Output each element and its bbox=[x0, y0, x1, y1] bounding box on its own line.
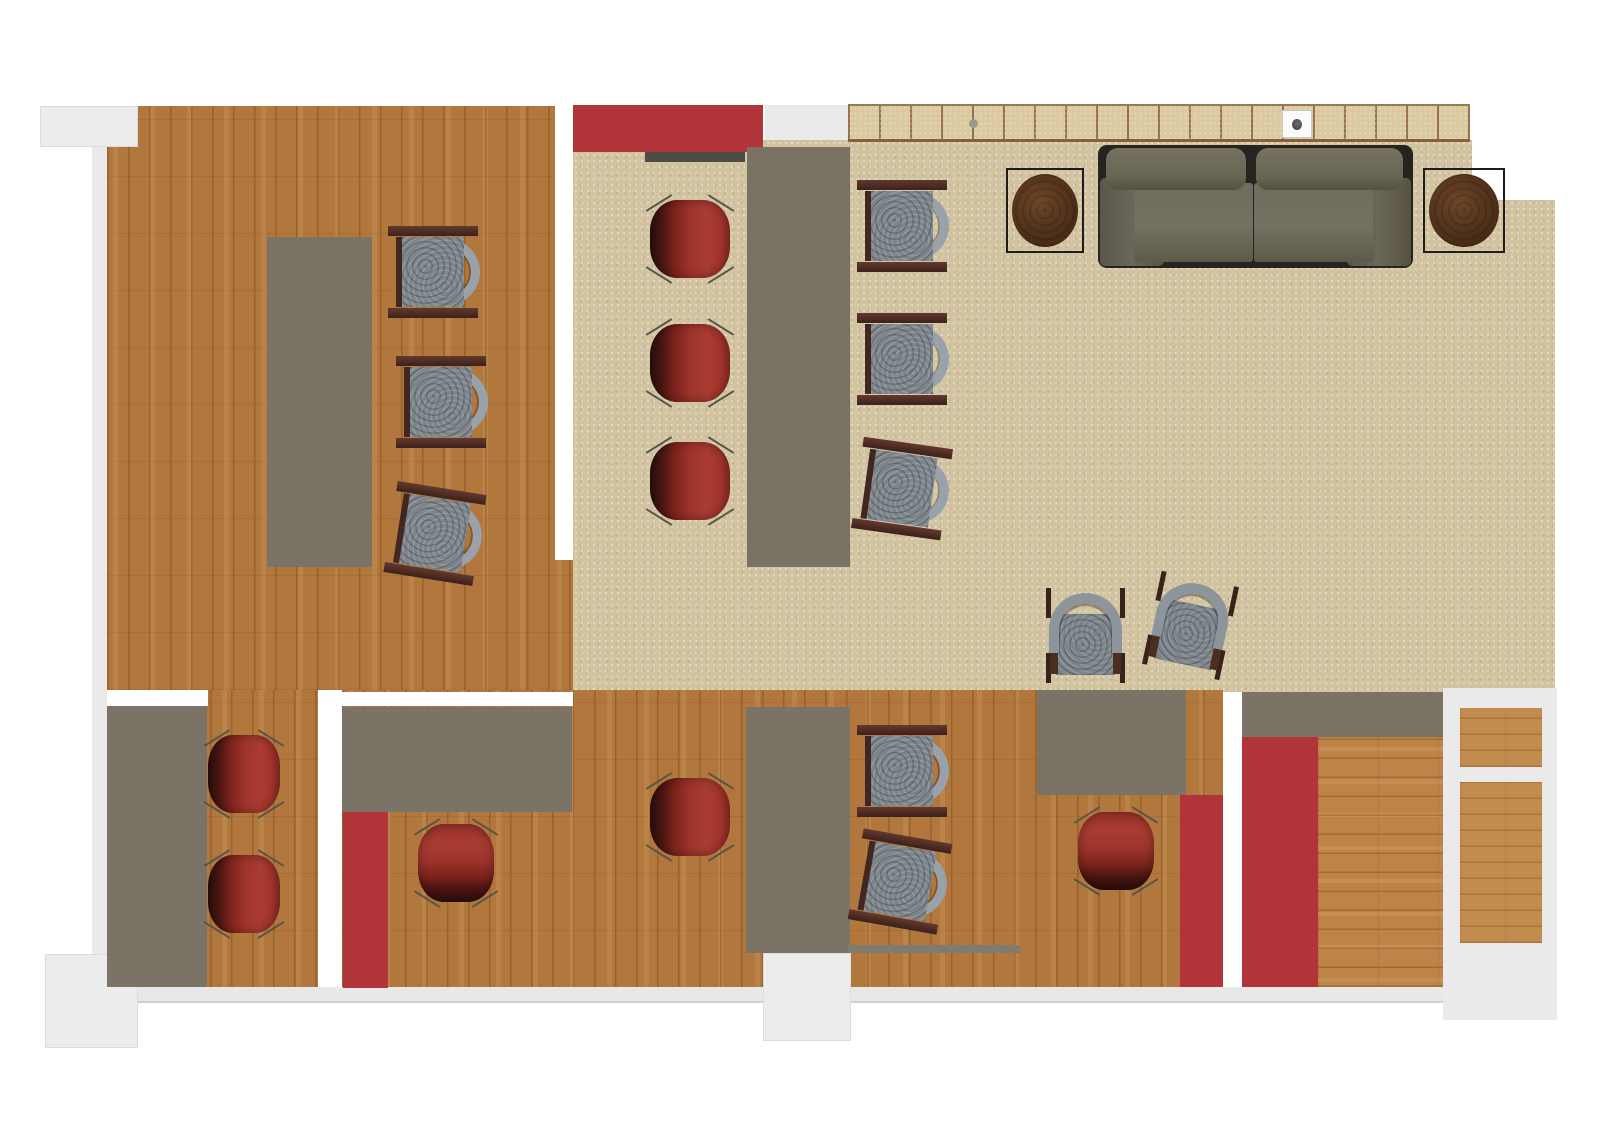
chair-seat bbox=[650, 324, 730, 402]
chair-seat bbox=[865, 736, 933, 806]
red-floor-strip bbox=[343, 812, 388, 988]
wall-above-bottom-middle-office bbox=[323, 692, 573, 706]
conference-table bbox=[747, 147, 850, 567]
wood-mat-small bbox=[1460, 708, 1542, 767]
doorway-recess-bottom-middle bbox=[763, 953, 851, 1041]
red-accent-column bbox=[1180, 795, 1223, 987]
desk-column-bottom-middle bbox=[746, 707, 850, 953]
chair-seat bbox=[1078, 812, 1154, 890]
desk-far-bottom-right bbox=[1242, 692, 1443, 737]
chair-front-bar bbox=[396, 438, 486, 448]
chair-seat bbox=[208, 855, 280, 933]
wall-left-strip bbox=[92, 147, 107, 955]
wall-above-bottom-left-office bbox=[105, 690, 208, 706]
wall-ledge bbox=[848, 945, 1020, 953]
chair-seat bbox=[865, 324, 933, 394]
wall-board bbox=[645, 152, 745, 162]
office-chair-gray bbox=[396, 356, 492, 448]
floor-wood-office-bottom-right bbox=[1318, 737, 1443, 987]
wall-left-of-carpet bbox=[555, 106, 573, 560]
chair-back-bar bbox=[857, 725, 947, 735]
office-chair-gray bbox=[857, 313, 953, 405]
table-top-round bbox=[1429, 174, 1499, 247]
chair-seat bbox=[858, 841, 937, 922]
chair-front-bar bbox=[857, 395, 947, 405]
tub-chair-red bbox=[640, 318, 740, 408]
tiled-counter-wall bbox=[848, 104, 1470, 142]
chair-seat bbox=[208, 735, 280, 813]
chair-seat bbox=[393, 493, 471, 573]
chair-seat bbox=[404, 367, 472, 437]
chair-back-bar bbox=[388, 226, 478, 236]
tub-chair-red bbox=[640, 436, 740, 526]
tub-chair-red-facing-up bbox=[408, 818, 504, 908]
desk-bottom-right-office bbox=[1037, 690, 1186, 795]
wall-block-top-center bbox=[765, 105, 848, 140]
closet-area-right bbox=[1443, 688, 1557, 1020]
desk-bottom-left-office bbox=[107, 706, 207, 987]
office-chair-gray bbox=[388, 226, 484, 318]
tub-chair-red bbox=[640, 194, 740, 284]
chair-back-bar bbox=[857, 180, 947, 190]
office-chair-gray bbox=[857, 725, 953, 817]
table-top-round bbox=[1012, 174, 1078, 247]
outlet-hole bbox=[1292, 119, 1302, 130]
chair-back-bar bbox=[396, 356, 486, 366]
power-outlet bbox=[1282, 110, 1312, 138]
office-chair-gray bbox=[857, 180, 953, 272]
wall-between-bottom-middle-and-right bbox=[1223, 692, 1242, 990]
wall-between-bottom-left-and-middle bbox=[318, 692, 342, 988]
sofa-seat-cushion bbox=[1254, 183, 1373, 262]
chair-seat bbox=[650, 442, 730, 520]
sofa-back-cushion bbox=[1256, 148, 1403, 190]
chair-seat bbox=[650, 778, 730, 856]
side-table-left bbox=[1006, 168, 1084, 253]
chair-arch-back bbox=[1049, 593, 1122, 653]
chair-seat bbox=[396, 237, 464, 307]
wood-mat-large bbox=[1460, 782, 1542, 943]
desk-top-left-office bbox=[267, 237, 372, 567]
side-table-right bbox=[1423, 168, 1505, 253]
tub-chair-red-facing-up bbox=[1068, 806, 1164, 896]
chair-back-bar bbox=[857, 313, 947, 323]
red-accent-block bbox=[1242, 737, 1318, 987]
tub-chair-red bbox=[198, 729, 290, 819]
wall-fitting-dot bbox=[969, 119, 978, 128]
wall-stub-top-left bbox=[40, 106, 138, 147]
chair-seat bbox=[650, 200, 730, 278]
office-chair-gray-tilted bbox=[851, 437, 959, 541]
office-chair-gray-tilted bbox=[383, 481, 492, 587]
sofa-back-cushion bbox=[1106, 148, 1246, 190]
chair-front-bar bbox=[388, 308, 478, 318]
chair-front-bar bbox=[857, 262, 947, 272]
desk-bottom-middle-office bbox=[342, 707, 572, 812]
two-seat-sofa bbox=[1098, 145, 1413, 268]
chair-seat bbox=[865, 191, 933, 261]
tub-chair-red bbox=[640, 772, 740, 862]
lounge-chair-arch bbox=[1043, 588, 1128, 683]
office-chair-gray-tilted bbox=[848, 828, 959, 935]
chair-front-bar bbox=[857, 807, 947, 817]
red-wall-panel bbox=[573, 105, 763, 152]
chair-seat bbox=[418, 824, 494, 902]
tub-chair-red bbox=[198, 849, 290, 939]
chair-seat bbox=[861, 449, 938, 528]
sofa-seat-cushion bbox=[1134, 183, 1253, 262]
floor-plan bbox=[0, 0, 1612, 1140]
